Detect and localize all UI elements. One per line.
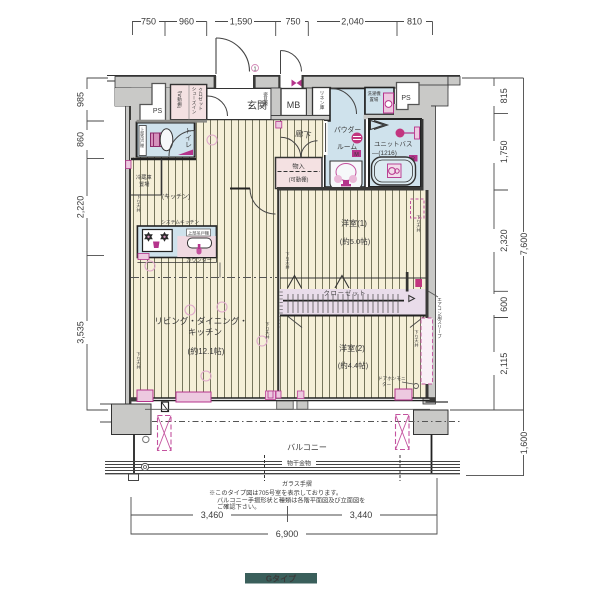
svg-text:―(1216): ―(1216) (372, 150, 397, 157)
svg-text:置場: 置場 (370, 96, 379, 103)
svg-text:6,900: 6,900 (276, 529, 299, 539)
svg-text:下り天井: 下り天井 (136, 195, 142, 214)
svg-text:815: 815 (499, 88, 509, 103)
svg-text:上部吊戸棚: 上部吊戸棚 (140, 126, 145, 148)
svg-text:(約5.0帖): (約5.0帖) (340, 236, 371, 246)
svg-text:カウンター: カウンター (186, 256, 212, 264)
svg-text:7,600: 7,600 (519, 233, 529, 256)
svg-text:シューズイン: シューズイン (191, 87, 197, 115)
svg-text:洗濯機: 洗濯機 (368, 90, 382, 97)
svg-text:「可動棚」: 「可動棚」 (177, 88, 183, 111)
svg-text:※このタイプ図は705号室を表示しております。: ※このタイプ図は705号室を表示しております。 (209, 489, 342, 497)
svg-text:キッチン: キッチン (188, 327, 222, 337)
svg-text:バルコニー: バルコニー (287, 443, 327, 452)
svg-text:下り天井: 下り天井 (265, 322, 271, 341)
svg-text:2,220: 2,220 (76, 196, 86, 219)
svg-text:ルーム: ルーム (337, 143, 357, 151)
svg-text:クロゼット: クロゼット (198, 88, 204, 111)
svg-text:置場: 置場 (139, 180, 149, 188)
svg-text:ご確認下さい。: ご確認下さい。 (217, 503, 260, 511)
svg-text:3,535: 3,535 (76, 321, 86, 344)
svg-text:Gタイプ: Gタイプ (266, 574, 297, 584)
svg-text:2,040: 2,040 (341, 17, 364, 27)
svg-text:750: 750 (285, 17, 300, 27)
svg-text:3,440: 3,440 (350, 510, 373, 520)
svg-text:リネン庫: リネン庫 (319, 91, 324, 112)
svg-text:1,600: 1,600 (519, 432, 529, 455)
svg-text:リビング・ダイニング・: リビング・ダイニング・ (154, 316, 248, 326)
svg-text:洋室(2): 洋室(2) (339, 343, 365, 353)
svg-text:PS: PS (153, 108, 163, 115)
svg-text:ター: ター (382, 381, 392, 388)
svg-text:下り天井: 下り天井 (285, 252, 291, 271)
svg-text:2,115: 2,115 (499, 353, 509, 375)
svg-text:750: 750 (141, 17, 156, 27)
svg-text:上部吊戸棚: 上部吊戸棚 (188, 230, 209, 237)
svg-text:MB: MB (287, 100, 301, 110)
svg-text:810: 810 (407, 17, 422, 27)
svg-text:下り天井: 下り天井 (414, 330, 420, 349)
svg-text:(約12.1帖): (約12.1帖) (188, 346, 225, 356)
svg-text:1,590: 1,590 (230, 17, 253, 27)
svg-text:2,320: 2,320 (499, 229, 509, 252)
svg-text:クローゼット: クローゼット (323, 290, 366, 298)
svg-text:1: 1 (253, 67, 256, 73)
svg-text:下り天井: 下り天井 (416, 215, 422, 234)
svg-text:エアコン用スリーブ: エアコン用スリーブ (437, 297, 443, 339)
svg-text:(可動棚): (可動棚) (289, 176, 309, 184)
svg-text:下り天井: 下り天井 (136, 352, 142, 371)
svg-text:(約4.4帖): (約4.4帖) (338, 360, 369, 370)
svg-text:3,460: 3,460 (201, 510, 224, 520)
svg-text:洋室(1): 洋室(1) (341, 218, 367, 228)
svg-text:860: 860 (76, 132, 86, 147)
svg-text:(キッチン): (キッチン) (162, 194, 190, 201)
svg-text:985: 985 (76, 92, 86, 107)
svg-text:M: M (354, 152, 359, 158)
svg-text:PS: PS (401, 95, 411, 102)
svg-text:600: 600 (499, 297, 509, 312)
svg-text:トイレ: トイレ (185, 127, 193, 148)
svg-text:冷蔵庫: 冷蔵庫 (136, 173, 152, 181)
svg-text:姿見鏡: 姿見鏡 (263, 91, 269, 107)
svg-text:ユニットバス: ユニットバス (374, 140, 412, 148)
svg-text:物入: 物入 (292, 163, 304, 171)
svg-text:1,750: 1,750 (499, 141, 509, 164)
svg-text:960: 960 (179, 17, 194, 27)
svg-text:システムキッチン: システムキッチン (161, 220, 199, 226)
svg-text:ガラス手摺: ガラス手摺 (282, 480, 312, 488)
svg-text:物干金物: 物干金物 (287, 460, 311, 468)
